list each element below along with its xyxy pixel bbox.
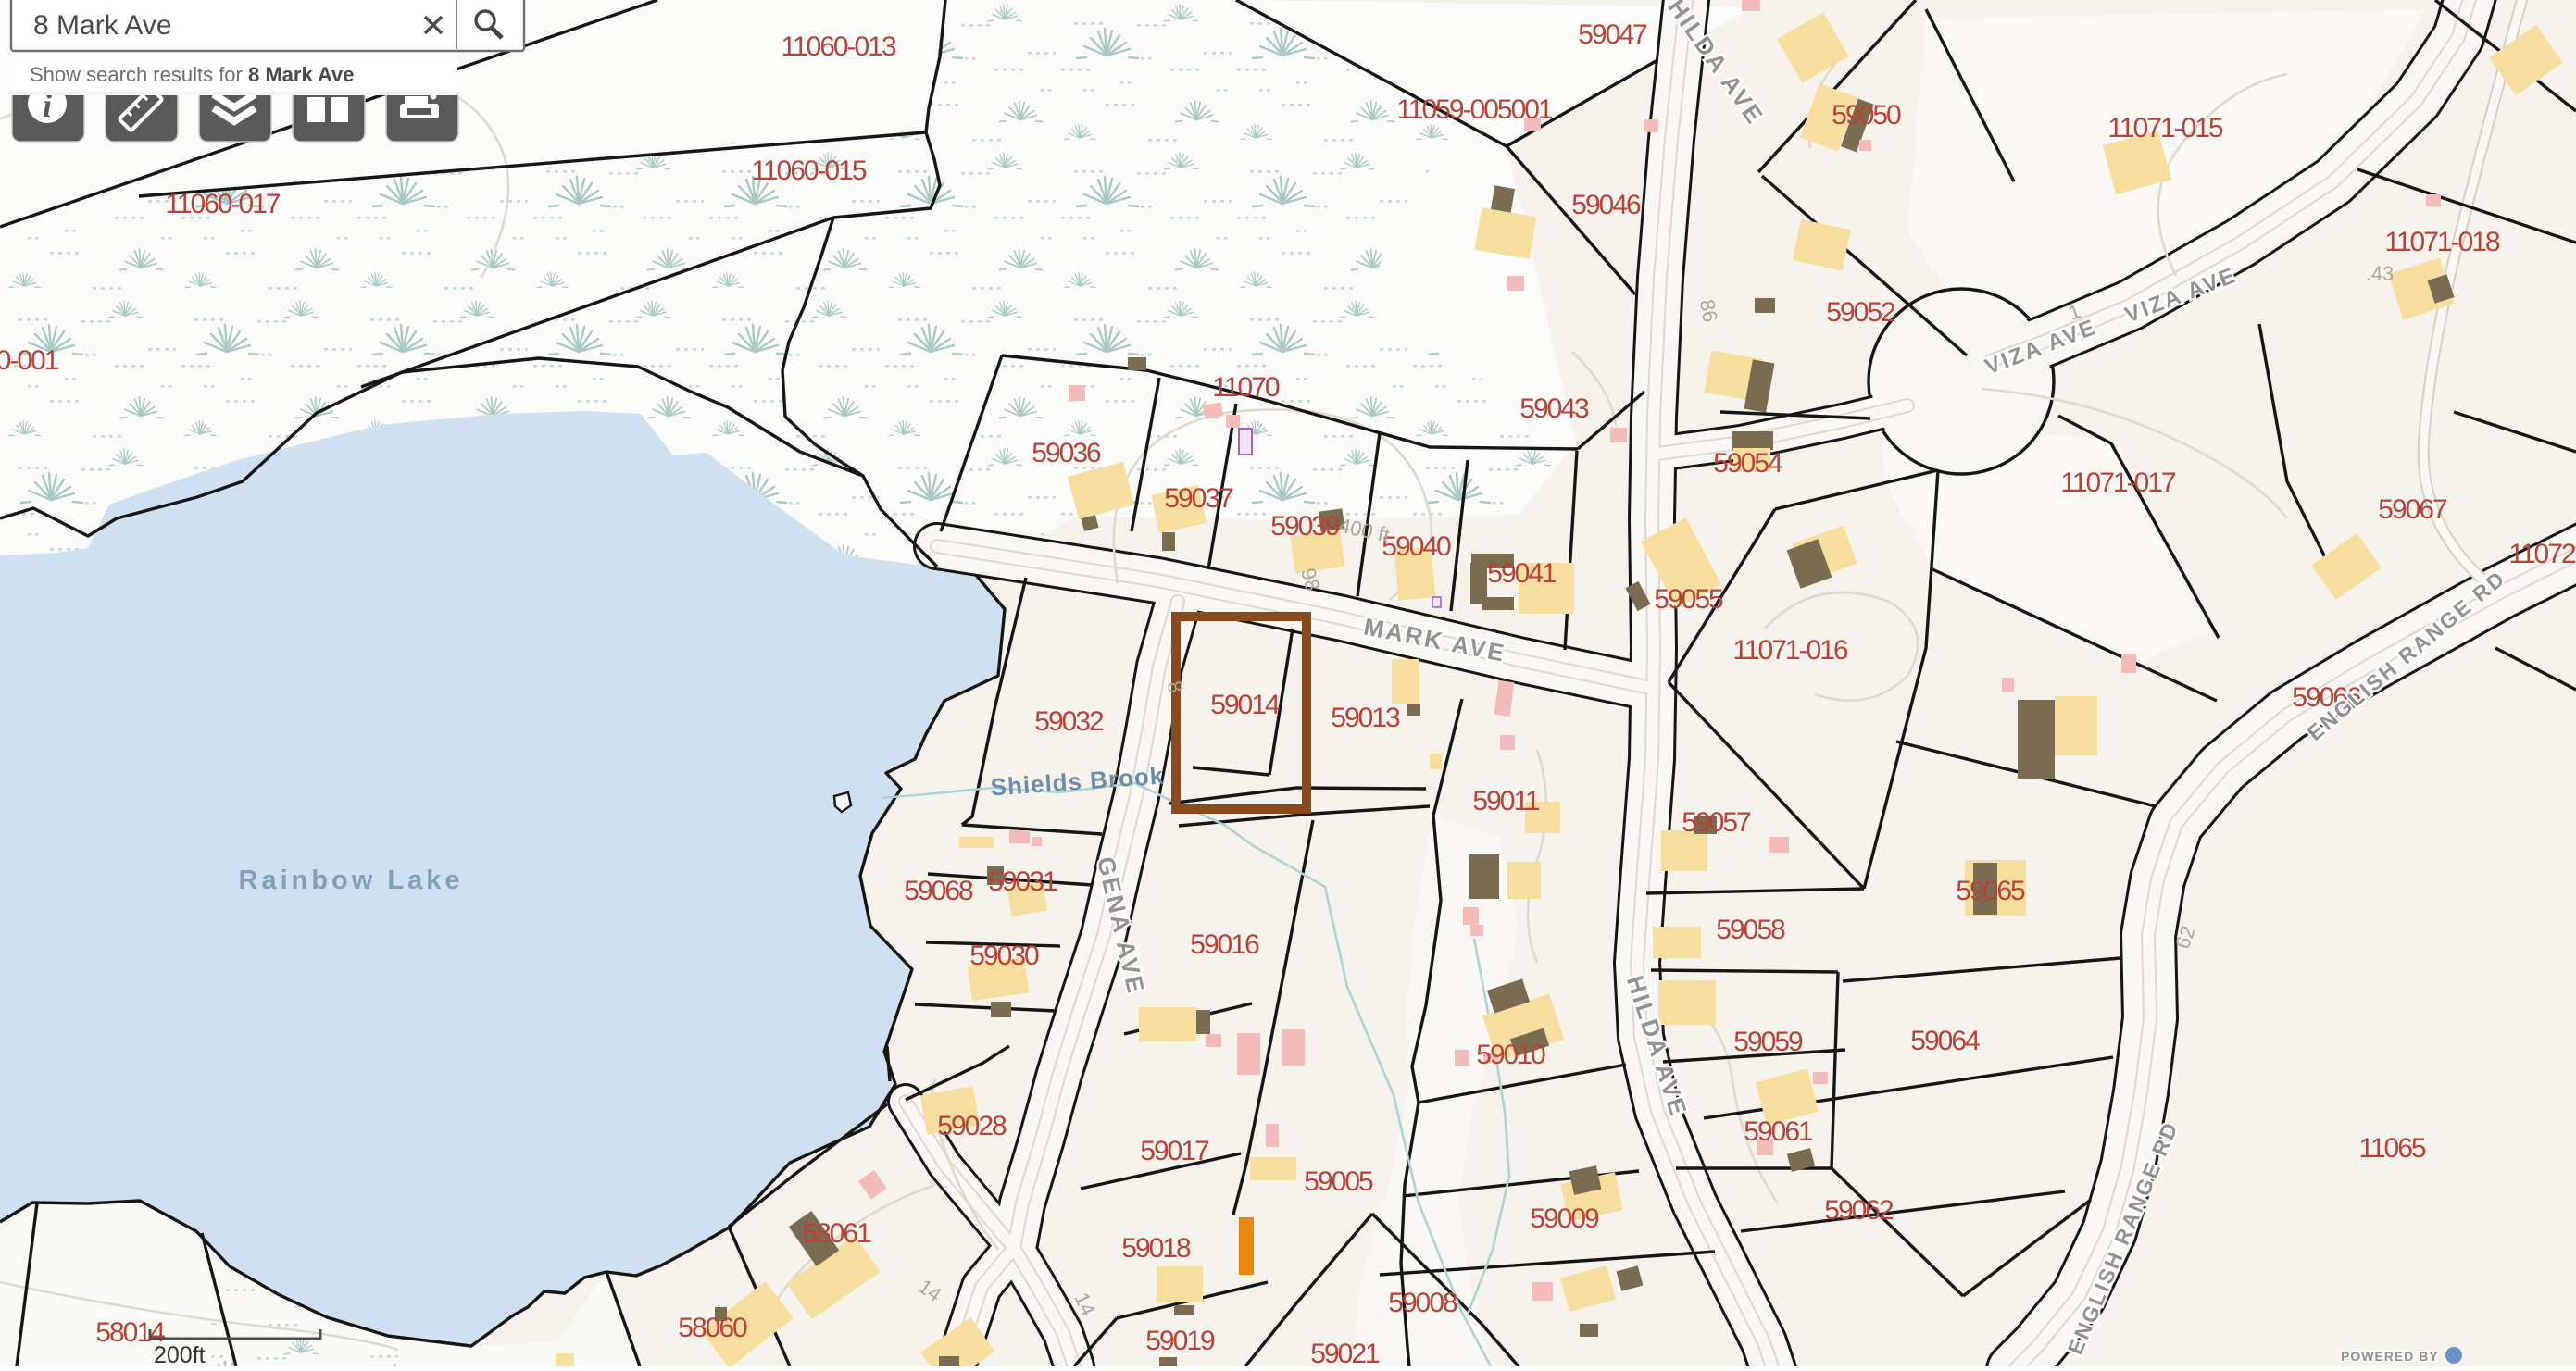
svg-text:.43: .43 xyxy=(2366,262,2395,285)
svg-text:59061: 59061 xyxy=(1744,1116,1813,1147)
svg-text:59065: 59065 xyxy=(1956,876,2025,906)
svg-text:59050: 59050 xyxy=(1832,100,1901,131)
svg-text:59008: 59008 xyxy=(1388,1288,1457,1318)
svg-text:11060-017: 11060-017 xyxy=(165,189,281,219)
svg-text:59018: 59018 xyxy=(1121,1233,1191,1264)
svg-text:11072: 11072 xyxy=(2508,539,2576,569)
svg-text:59010: 59010 xyxy=(1476,1040,1545,1070)
svg-text:Rainbow Lake: Rainbow Lake xyxy=(239,866,464,895)
svg-text:0-001: 0-001 xyxy=(0,345,59,376)
svg-text:59017: 59017 xyxy=(1140,1136,1209,1166)
svg-text:59014: 59014 xyxy=(1210,690,1280,720)
svg-text:86: 86 xyxy=(1695,297,1722,323)
svg-text:59005: 59005 xyxy=(1304,1166,1373,1197)
svg-text:59013: 59013 xyxy=(1331,703,1400,733)
svg-text:59041: 59041 xyxy=(1487,558,1557,589)
svg-text:59052: 59052 xyxy=(1826,297,1895,328)
svg-text:59011: 59011 xyxy=(1472,786,1540,816)
svg-text:59016: 59016 xyxy=(1190,929,1259,960)
svg-text:59046: 59046 xyxy=(1571,190,1641,220)
svg-text:59058: 59058 xyxy=(1716,915,1785,945)
svg-text:59039: 59039 xyxy=(1270,511,1340,542)
svg-text:59054: 59054 xyxy=(1713,448,1782,479)
svg-text:11071-015: 11071-015 xyxy=(2107,113,2223,143)
svg-text:59064: 59064 xyxy=(1910,1026,1980,1056)
svg-text:59021: 59021 xyxy=(1310,1339,1380,1366)
svg-text:11071-016: 11071-016 xyxy=(1732,635,1848,666)
svg-text:59043: 59043 xyxy=(1519,393,1589,424)
svg-text:11071-017: 11071-017 xyxy=(2060,467,2176,498)
svg-text:59031: 59031 xyxy=(988,866,1057,897)
svg-text:8 Mark Ave: 8 Mark Ave xyxy=(33,10,172,41)
svg-text:59057: 59057 xyxy=(1682,807,1751,838)
svg-text:200ft: 200ft xyxy=(154,1342,206,1366)
svg-text:59055: 59055 xyxy=(1654,584,1723,615)
svg-text:11070: 11070 xyxy=(1212,372,1280,403)
svg-text:11059-005001: 11059-005001 xyxy=(1396,94,1553,125)
svg-text:59028: 59028 xyxy=(937,1111,1007,1141)
svg-text:59059: 59059 xyxy=(1733,1027,1803,1057)
svg-text:59019: 59019 xyxy=(1145,1326,1215,1356)
svg-text:59032: 59032 xyxy=(1034,706,1104,737)
svg-text:Show search results for 8 Mark: Show search results for 8 Mark Ave xyxy=(30,63,355,86)
svg-text:11060-015: 11060-015 xyxy=(751,156,867,186)
svg-text:58061: 58061 xyxy=(802,1218,871,1249)
svg-text:59030: 59030 xyxy=(969,941,1039,971)
svg-text:59068: 59068 xyxy=(904,876,973,906)
svg-text:59036: 59036 xyxy=(1032,438,1101,468)
svg-text:59047: 59047 xyxy=(1578,19,1647,50)
svg-text:59009: 59009 xyxy=(1530,1203,1599,1234)
svg-text:11065: 11065 xyxy=(2358,1133,2426,1164)
svg-text:11071-018: 11071-018 xyxy=(2384,227,2500,257)
svg-text:59062: 59062 xyxy=(1824,1195,1894,1226)
svg-text:59037: 59037 xyxy=(1164,483,1233,514)
svg-text:58060: 58060 xyxy=(678,1313,747,1343)
svg-text:POWERED BY: POWERED BY xyxy=(2341,1349,2439,1364)
svg-text:59067: 59067 xyxy=(2378,494,2447,525)
svg-text:11060-013: 11060-013 xyxy=(781,31,896,62)
svg-text:59040: 59040 xyxy=(1382,531,1451,562)
